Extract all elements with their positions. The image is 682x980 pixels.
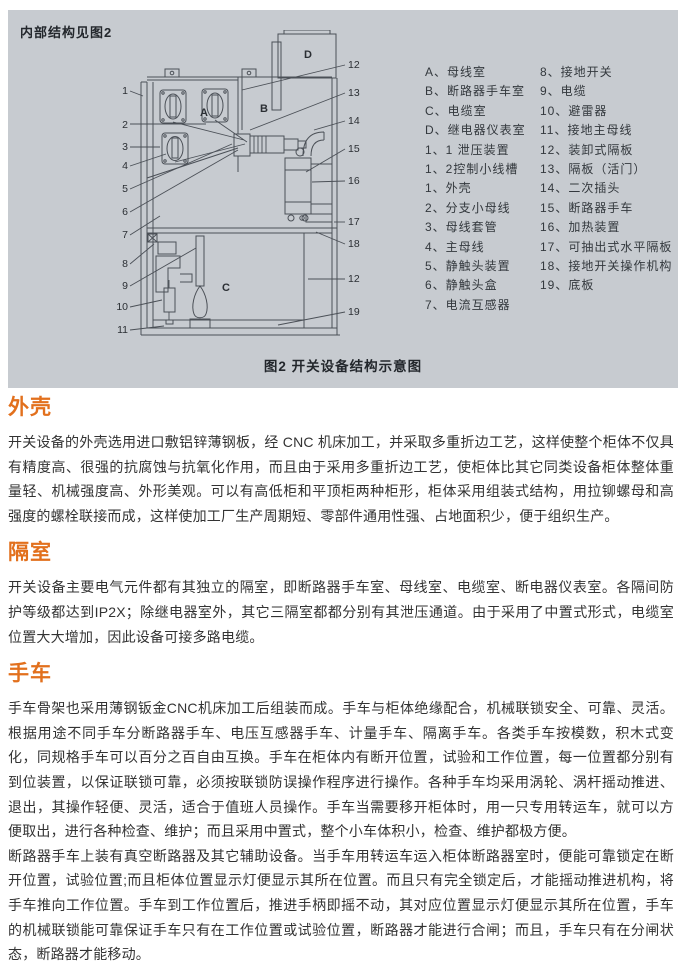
- callout-5: 5: [122, 183, 128, 195]
- callout-7: 7: [122, 229, 128, 241]
- section-heading-handcart: 手车: [8, 662, 674, 686]
- cable-room-parts: [148, 234, 210, 328]
- legend-item: 16、加热装置: [540, 218, 678, 237]
- legend-item: 4、主母线: [425, 238, 540, 257]
- static-contact-assembly: [234, 134, 306, 156]
- callout-4: 4: [122, 160, 128, 172]
- section-heading-compartments: 隔室: [8, 541, 674, 565]
- section-compartments: 隔室 开关设备主要电气元件都有其独立的隔室，即断路器手车室、母线室、电缆室、断电…: [8, 541, 674, 649]
- legend-item: 7、电流互感器: [425, 296, 540, 315]
- legend-item: 1、1 泄压装置: [425, 141, 540, 160]
- legend-item: 2、分支小母线: [425, 199, 540, 218]
- callout-13: 13: [348, 87, 360, 99]
- callout-17: 17: [348, 216, 360, 228]
- legend-item: 9、电缆: [540, 82, 678, 101]
- callout-2: 2: [122, 119, 128, 131]
- wall-bushing-elbow: [296, 132, 324, 156]
- legend-item: 17、可抽出式水平隔板: [540, 238, 678, 257]
- callout-15: 15: [348, 143, 360, 155]
- legend-item: 18、接地开关操作机构: [540, 257, 678, 276]
- callout-8: 8: [122, 258, 128, 270]
- section-handcart: 手车 手车骨架也采用薄钢钣金CNC机床加工后组装而成。手车与柜体绝缘配合，机械联…: [8, 662, 674, 967]
- callout-19: 19: [348, 306, 360, 318]
- relay-instrument-box: [272, 30, 336, 110]
- legend-item: 12、装卸式隔板: [540, 141, 678, 160]
- callout-6: 6: [122, 206, 128, 218]
- legend-column-1: A、母线室 B、断路器手车室 C、电缆室 D、继电器仪表室 1、1 泄压装置 1…: [425, 63, 540, 315]
- section-paragraph: 断路器手车上装有真空断路器及其它辅助设备。当手车用转运车运入柜体断路器室时，便能…: [8, 844, 674, 967]
- breaker-handcart: [285, 158, 332, 222]
- legend-item: 13、隔板（活门）: [540, 160, 678, 179]
- callout-3: 3: [122, 141, 128, 153]
- callout-16: 16: [348, 175, 360, 187]
- legend-item: 1、外壳: [425, 179, 540, 198]
- legend-item: 19、底板: [540, 276, 678, 295]
- diagram-legend: A、母线室 B、断路器手车室 C、电缆室 D、继电器仪表室 1、1 泄压装置 1…: [425, 63, 678, 315]
- section-paragraph: 开关设备的外壳选用进口敷铝锌薄钢板，经 CNC 机床加工，并采取多重折边工艺，这…: [8, 430, 674, 528]
- section-paragraph: 手车骨架也采用薄钢钣金CNC机床加工后组装而成。手车与柜体绝缘配合，机械联锁安全…: [8, 696, 674, 844]
- figure-panel-title: 内部结构见图2: [20, 22, 112, 41]
- figure-panel: 内部结构见图2: [8, 10, 678, 388]
- legend-item: 8、接地开关: [540, 63, 678, 82]
- callout-14: 14: [348, 115, 360, 127]
- callout-12b: 12: [348, 273, 360, 285]
- switchgear-cross-section-diagram: A B C D 1 2 3 4 5 6 7 8 9 10 11 12 13 14…: [108, 30, 420, 350]
- callout-10: 10: [116, 301, 128, 313]
- room-label-b: B: [260, 103, 268, 115]
- figure-caption: 图2 开关设备结构示意图: [8, 355, 678, 375]
- legend-item: 5、静触头装置: [425, 257, 540, 276]
- section-heading-shell: 外壳: [8, 396, 674, 420]
- legend-item: 14、二次插头: [540, 179, 678, 198]
- article-content: 外壳 开关设备的外壳选用进口敷铝锌薄钢板，经 CNC 机床加工，并采取多重折边工…: [8, 396, 674, 980]
- callout-1: 1: [122, 85, 128, 97]
- legend-item: 11、接地主母线: [540, 121, 678, 140]
- room-label-c: C: [222, 282, 230, 294]
- room-label-a: A: [200, 107, 208, 119]
- section-paragraph: 开关设备主要电气元件都有其独立的隔室，即断路器手车室、母线室、电缆室、断电器仪表…: [8, 575, 674, 649]
- legend-column-2: 8、接地开关 9、电缆 10、避雷器 11、接地主母线 12、装卸式隔板 13、…: [540, 63, 678, 315]
- legend-item: B、断路器手车室: [425, 82, 540, 101]
- legend-item: 10、避雷器: [540, 102, 678, 121]
- legend-item: 6、静触头盒: [425, 276, 540, 295]
- callout-18: 18: [348, 238, 360, 250]
- legend-item: A、母线室: [425, 63, 540, 82]
- callout-11: 11: [117, 324, 128, 336]
- legend-item: 15、断路器手车: [540, 199, 678, 218]
- callout-12: 12: [348, 59, 360, 71]
- legend-item: D、继电器仪表室: [425, 121, 540, 140]
- room-label-d: D: [304, 49, 312, 61]
- legend-item: 1、2控制小线槽: [425, 160, 540, 179]
- legend-item: C、电缆室: [425, 102, 540, 121]
- section-shell: 外壳 开关设备的外壳选用进口敷铝锌薄钢板，经 CNC 机床加工，并采取多重折边工…: [8, 396, 674, 528]
- callout-9: 9: [122, 280, 128, 292]
- legend-item: 3、母线套管: [425, 218, 540, 237]
